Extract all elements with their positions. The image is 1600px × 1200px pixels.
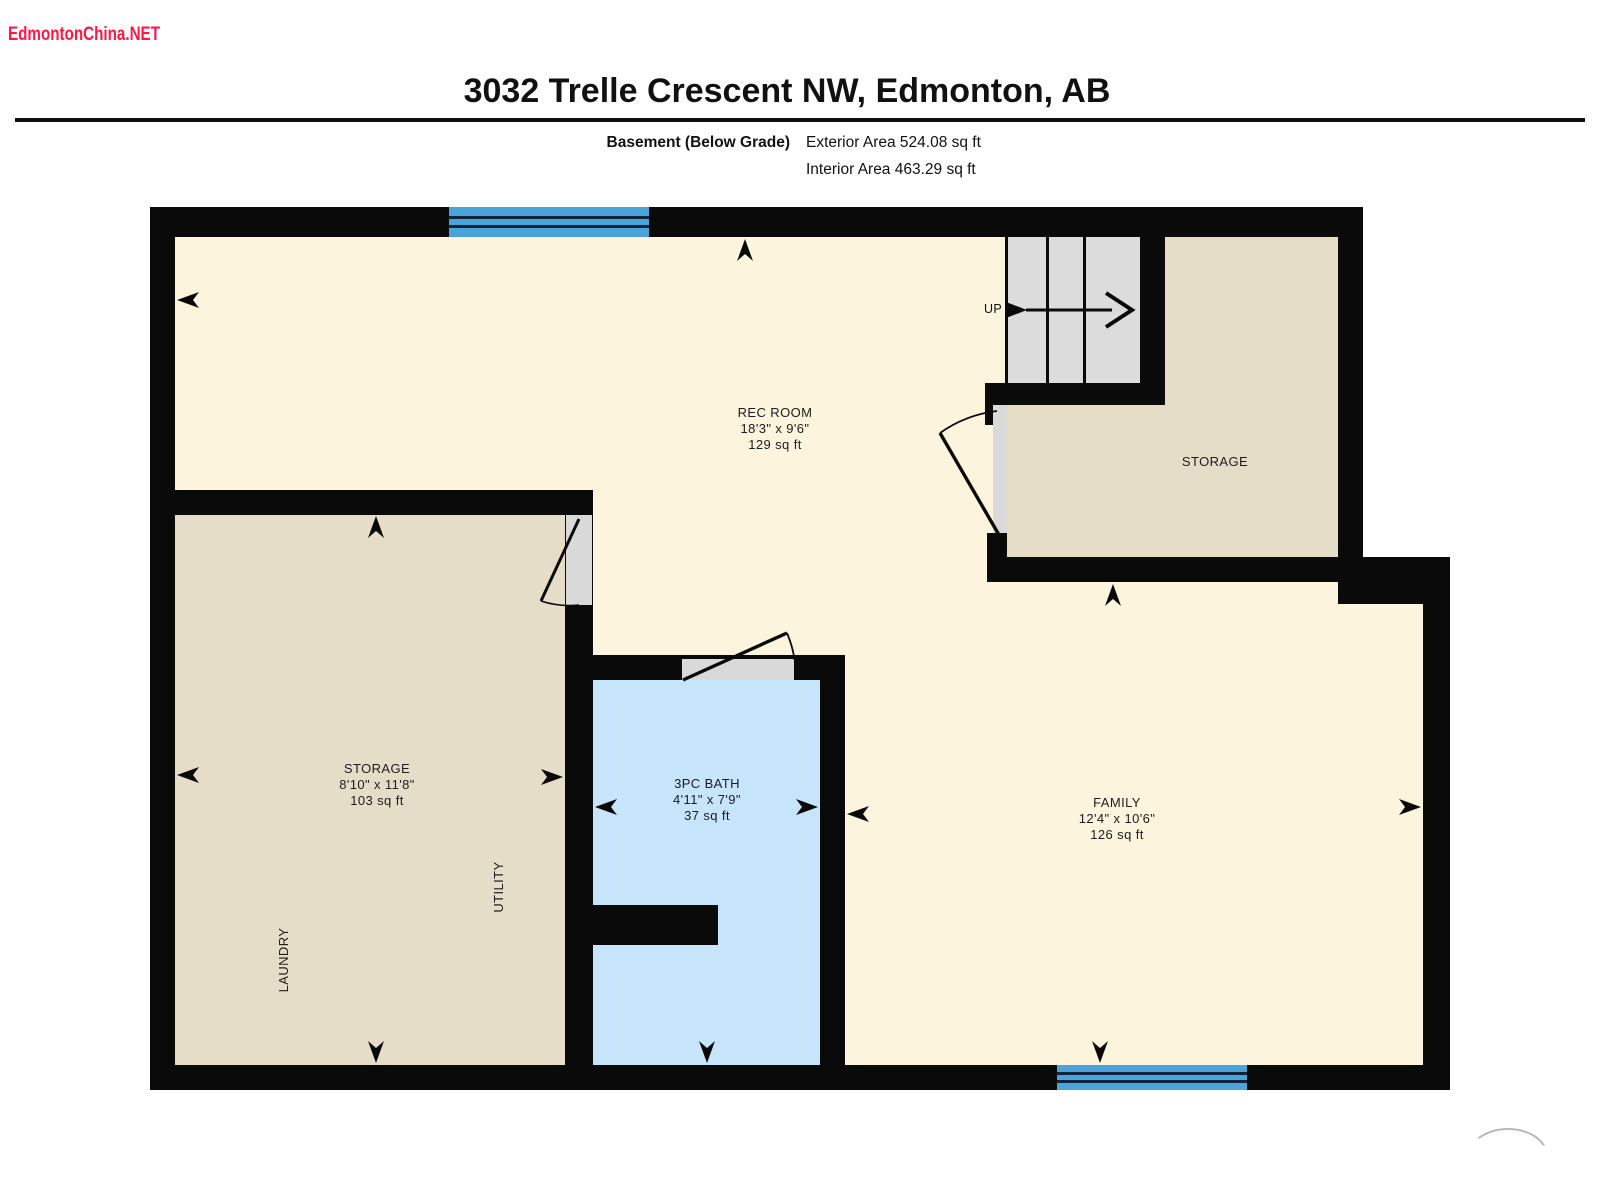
- room-label-storage-left: STORAGE 8'10" x 11'8" 103 sq ft: [339, 761, 415, 809]
- door-leaf-storage-left: [541, 519, 579, 601]
- stairs-up-label: UP: [946, 302, 1002, 316]
- room-label-laundry: LAUNDRY: [276, 928, 292, 993]
- room-label-rec-room: REC ROOM 18'3" x 9'6" 129 sq ft: [738, 405, 813, 453]
- exterior-area-text: Exterior Area 524.08 sq ft: [806, 134, 981, 152]
- page-title: 3032 Trelle Crescent NW, Edmonton, AB: [0, 72, 1574, 111]
- site-watermark: EdmontonChina.NET: [8, 24, 160, 46]
- dimension-arrow-left-icon: [847, 806, 869, 822]
- dimension-arrow-down-icon: [368, 1041, 384, 1063]
- room-area: 37 sq ft: [673, 808, 741, 824]
- room-label-family: FAMILY 12'4" x 10'6" 126 sq ft: [1079, 795, 1156, 843]
- room-dimensions: 8'10" x 11'8": [339, 777, 415, 793]
- dimension-arrow-down-icon: [1092, 1041, 1108, 1063]
- room-dimensions: 4'11" x 7'9": [673, 792, 741, 808]
- dimension-arrow-up-icon: [1105, 584, 1121, 606]
- room-dimensions: 12'4" x 10'6": [1079, 811, 1156, 827]
- room-area: 103 sq ft: [339, 793, 415, 809]
- door-leaf-storage-right: [940, 433, 999, 535]
- dimension-arrow-left-icon: [177, 767, 199, 783]
- door-arc-bath: [787, 633, 796, 677]
- room-name: STORAGE: [339, 761, 415, 777]
- room-name: FAMILY: [1079, 795, 1156, 811]
- room-label-utility: UTILITY: [491, 861, 507, 912]
- room-area: 126 sq ft: [1079, 827, 1156, 843]
- page: EdmontonChina.NET 3032 Trelle Crescent N…: [0, 0, 1600, 1200]
- room-name: REC ROOM: [738, 405, 813, 421]
- floor-label: Basement (Below Grade): [440, 134, 790, 152]
- dimension-arrow-right-icon: [541, 769, 563, 785]
- dimension-arrow-left-icon: [177, 292, 199, 308]
- dimension-arrow-down-icon: [699, 1041, 715, 1063]
- floor-plan: REC ROOM 18'3" x 9'6" 129 sq ft STORAGE …: [150, 207, 1450, 1090]
- room-label-storage-right: STORAGE: [1182, 454, 1248, 470]
- interior-area-text: Interior Area 463.29 sq ft: [806, 161, 976, 179]
- door-arc-storage-left: [541, 601, 579, 606]
- dimension-arrow-right-icon: [1399, 799, 1421, 815]
- title-divider: [15, 118, 1585, 122]
- door-arc-storage-right: [940, 411, 997, 433]
- room-name: 3PC BATH: [673, 776, 741, 792]
- room-label-bath: 3PC BATH 4'11" x 7'9" 37 sq ft: [673, 776, 741, 824]
- room-dimensions: 18'3" x 9'6": [738, 421, 813, 437]
- door-leaf-bath: [683, 633, 787, 680]
- plan-annotations: [150, 207, 1450, 1090]
- up-leader-arrow-icon: [1006, 302, 1027, 318]
- room-name: STORAGE: [1182, 454, 1248, 470]
- dimension-arrow-right-icon: [796, 799, 818, 815]
- room-name: UTILITY: [491, 861, 507, 912]
- corner-arc-mark: [1468, 1128, 1548, 1156]
- dimension-arrow-left-icon: [595, 799, 617, 815]
- room-name: LAUNDRY: [276, 928, 292, 993]
- dimension-arrow-up-icon: [737, 239, 753, 261]
- room-area: 129 sq ft: [738, 437, 813, 453]
- dimension-arrow-up-icon: [368, 516, 384, 538]
